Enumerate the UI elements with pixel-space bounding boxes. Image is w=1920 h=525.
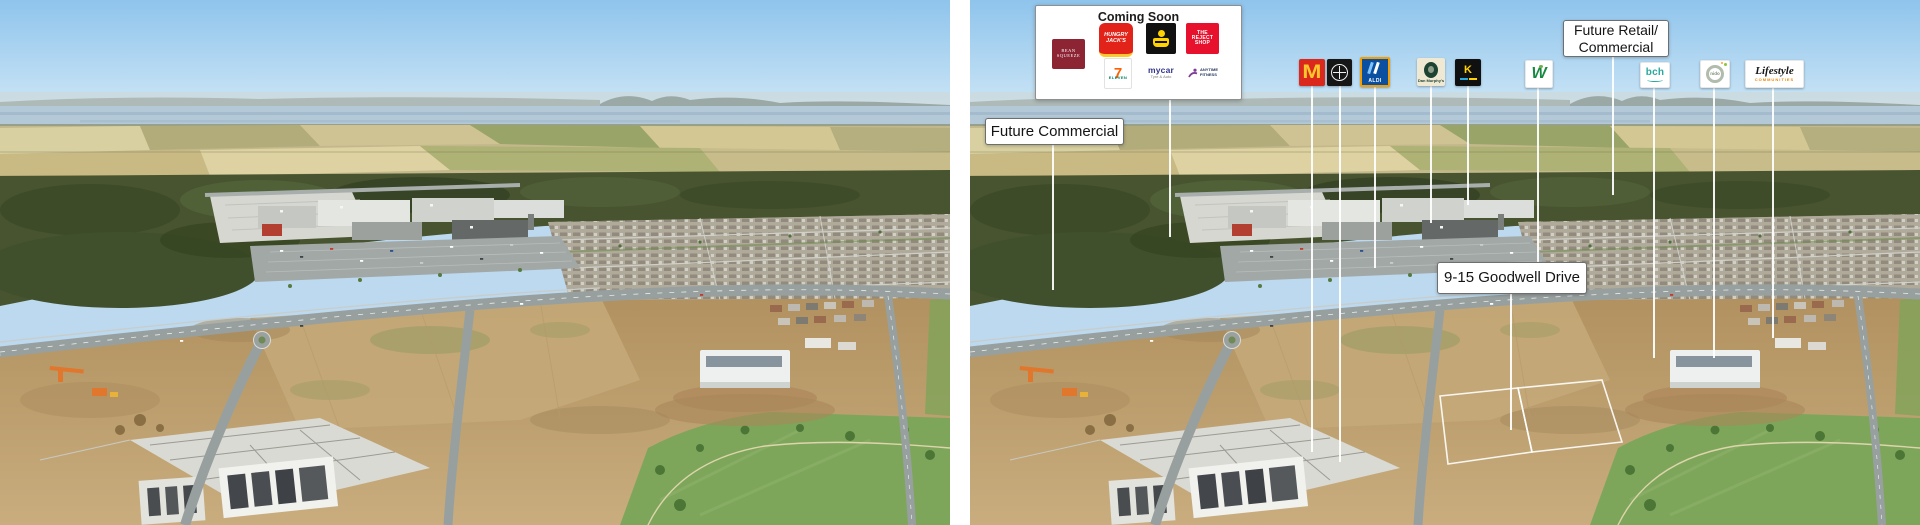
anytime-fitness-label: ANYTIME FITNESS <box>1200 68 1218 78</box>
aldi-logo: ALDI <box>1360 57 1390 87</box>
bean-squeeze-label: SQUEEZE <box>1057 54 1081 59</box>
left-panel-before-photo <box>0 0 950 525</box>
coming-soon-title: Coming Soon <box>1036 10 1241 24</box>
aldi-mark: ALDI <box>1362 59 1388 85</box>
right-panel-annotated-photo: Coming Soon BEAN SQUEEZE HUNGRY JACK'S T… <box>970 0 1920 525</box>
leader-line-dan-murphys <box>1430 86 1432 223</box>
reject-shop-label: SHOP <box>1195 41 1210 46</box>
leader-line-bch <box>1653 86 1655 358</box>
leader-line-k-brand <box>1467 86 1469 205</box>
aerial-photograph <box>0 0 950 525</box>
nido-ring-icon: nido <box>1706 65 1724 83</box>
hungry-jacks-logo: HUNGRY JACK'S <box>1099 23 1133 57</box>
label-future-commercial: Future Commercial <box>985 118 1124 145</box>
golden-arches-icon: M <box>1302 63 1321 82</box>
the-reject-shop-logo: THE REJECT SHOP <box>1186 23 1219 54</box>
dan-murphys-logo: Dan Murphy's <box>1417 58 1445 86</box>
lifestyle-label: Lifestyle <box>1755 66 1793 77</box>
k-glyph: K <box>1464 65 1472 76</box>
goodwell-drive-text: 9-15 Goodwell Drive <box>1444 269 1580 286</box>
bch-logo: bch <box>1640 62 1670 88</box>
future-commercial-text: Future Commercial <box>991 123 1119 140</box>
leader-line-goodwell-drive <box>1510 292 1512 430</box>
worker-figure-logo <box>1146 23 1176 54</box>
anytime-label-line2: FITNESS <box>1200 72 1217 77</box>
leader-line-mcdonalds <box>1311 86 1313 452</box>
figure-head-icon <box>1158 30 1165 37</box>
bean-squeeze-logo: BEAN SQUEEZE <box>1052 39 1085 69</box>
nido-dot-icon <box>1724 63 1727 66</box>
circular-emblem-logo <box>1327 59 1352 86</box>
leader-line-future-retail <box>1612 55 1614 195</box>
mcdonalds-logo: M <box>1299 59 1325 86</box>
leader-line-nido <box>1713 86 1715 358</box>
eleven-label: ELEVEN <box>1109 76 1127 80</box>
bch-swoosh-icon <box>1647 78 1663 82</box>
seven-eleven-logo: 7 ELEVEN <box>1104 58 1132 89</box>
aldi-stripe-icon <box>1373 62 1380 74</box>
leader-line-circular-emblem <box>1339 86 1341 462</box>
leader-line-coming-soon <box>1169 98 1171 237</box>
leader-line-future-commercial <box>1052 143 1054 290</box>
nido-logo: nido <box>1700 60 1730 88</box>
k-brand-logo: K <box>1455 59 1481 86</box>
woolworths-apple-icon: W <box>1531 67 1546 81</box>
future-retail-text-line2: Commercial <box>1579 39 1654 55</box>
lifestyle-communities-sublabel: COMMUNITIES <box>1755 78 1794 82</box>
bch-label: bch <box>1646 68 1664 78</box>
label-goodwell-drive: 9-15 Goodwell Drive <box>1437 262 1587 294</box>
figure-crossed-arms-icon <box>1153 38 1169 47</box>
aerial-comparison-image: Coming Soon BEAN SQUEEZE HUNGRY JACK'S T… <box>0 0 1920 525</box>
hungry-jacks-label: JACK'S <box>1106 39 1126 45</box>
coming-soon-board: Coming Soon BEAN SQUEEZE HUNGRY JACK'S T… <box>1035 5 1242 100</box>
anytime-fitness-logo: ANYTIME FITNESS <box>1184 62 1222 83</box>
mycar-sublabel: Tyre & Auto <box>1151 75 1172 79</box>
k-brand-tagline-bars <box>1460 78 1477 80</box>
nido-label: nido <box>1710 72 1720 77</box>
woolworths-logo: W <box>1525 60 1553 88</box>
lifestyle-communities-logo: Lifestyle COMMUNITIES <box>1745 60 1804 88</box>
panel-divider <box>950 0 970 525</box>
dan-murphys-label: Dan Murphy's <box>1418 79 1444 83</box>
nido-dot-icon <box>1721 62 1723 64</box>
leader-line-lifestyle <box>1772 86 1774 338</box>
label-future-retail-commercial: Future Retail/ Commercial <box>1563 20 1669 57</box>
portrait-icon <box>1424 62 1438 78</box>
future-retail-text-line1: Future Retail/ <box>1574 22 1658 38</box>
leader-line-aldi <box>1374 87 1376 268</box>
mycar-logo: mycar Tyre & Auto <box>1142 63 1180 83</box>
running-man-icon <box>1188 68 1198 78</box>
aldi-label: ALDI <box>1368 79 1381 84</box>
circle-cross-icon <box>1331 64 1348 81</box>
